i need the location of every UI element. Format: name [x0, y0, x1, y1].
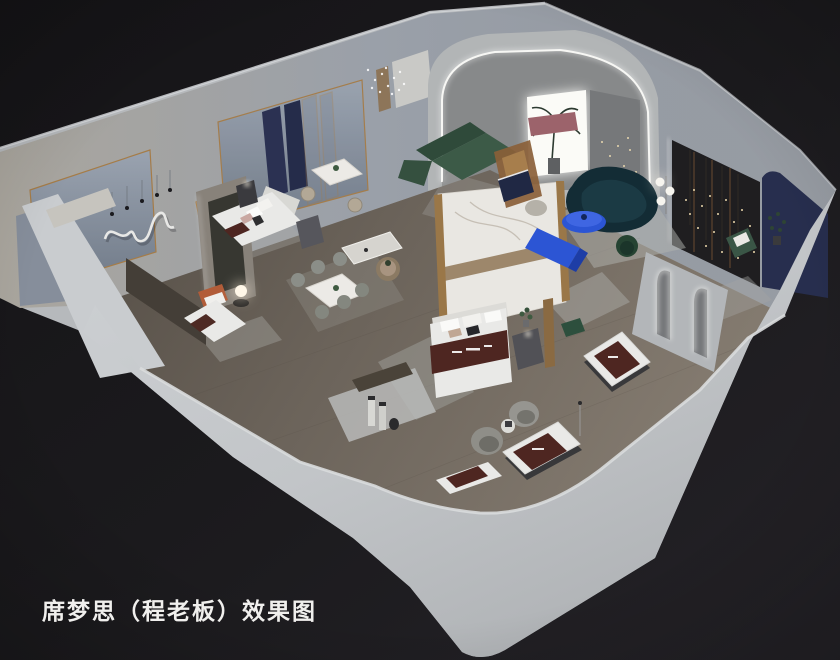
caption: 席梦思（程老板）效果图	[42, 592, 317, 626]
showroom-render	[0, 0, 840, 660]
vignette	[0, 0, 840, 660]
render-canvas: 席梦思（程老板）效果图	[0, 0, 840, 660]
